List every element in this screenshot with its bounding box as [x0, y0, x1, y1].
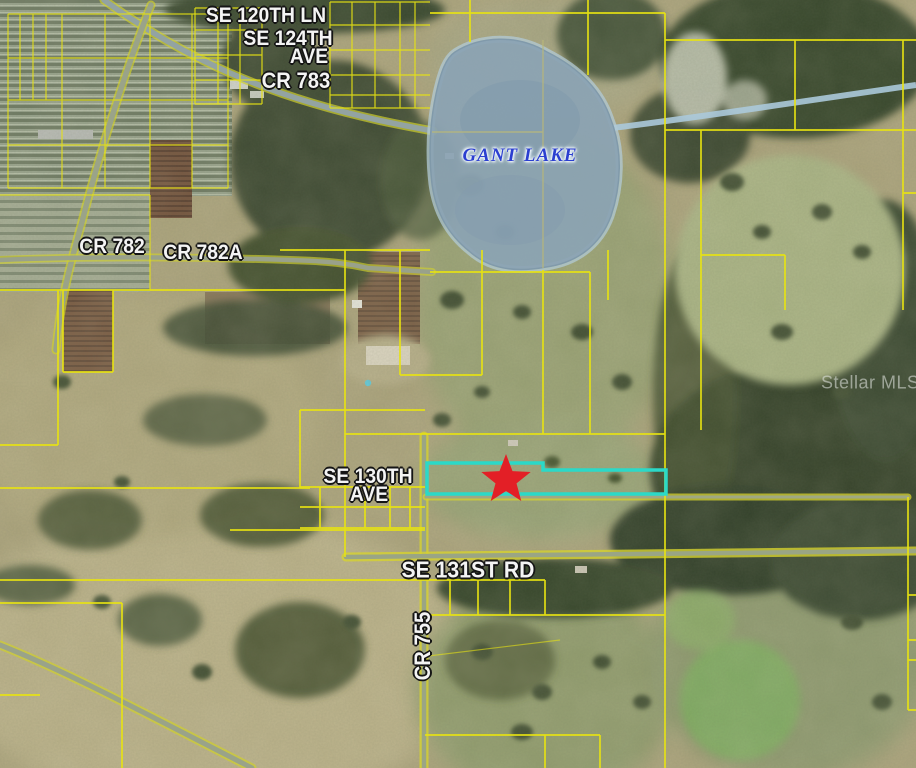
stellar-mls-watermark: Stellar MLS: [821, 373, 916, 394]
road-label-se-120th-ln: SE 120TH LN: [206, 4, 326, 28]
road-label-se-130th-ave: AVE: [350, 483, 388, 507]
lake-label-gant-lake: GANT LAKE: [462, 145, 577, 167]
road-label-cr-782a: CR 782A: [163, 241, 242, 265]
road-label-cr-783: CR 783: [262, 68, 331, 94]
road-label-se-124th-ave: AVE: [290, 45, 328, 69]
aerial-parcel-map: SE 120TH LN SE 124TH AVE CR 783 GANT LAK…: [0, 0, 916, 768]
road-label-cr-782: CR 782: [79, 235, 145, 259]
map-graphics: [0, 0, 916, 768]
road-label-se-131st-rd: SE 131ST RD: [402, 557, 535, 584]
road-label-cr-755: CR 755: [410, 612, 436, 681]
